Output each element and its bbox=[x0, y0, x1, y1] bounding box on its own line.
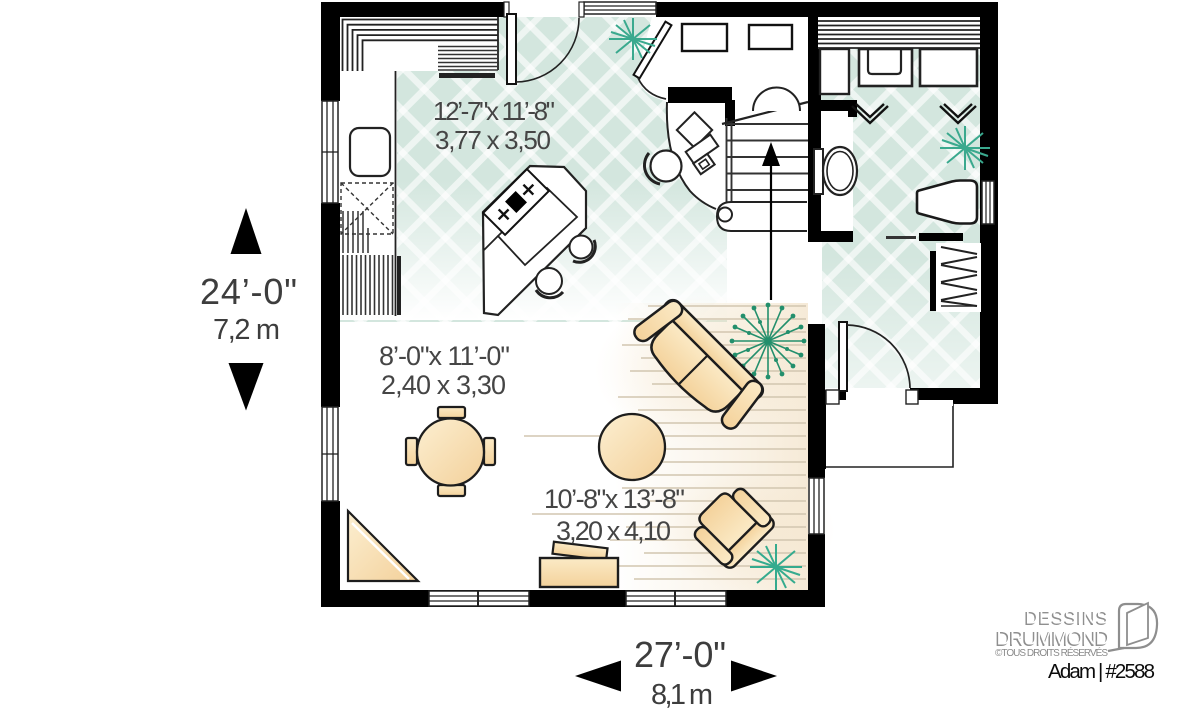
svg-text:24’-0": 24’-0" bbox=[200, 271, 297, 312]
svg-text:DRUMMOND: DRUMMOND bbox=[997, 628, 1111, 650]
svg-text:10’-8"x 13’-8": 10’-8"x 13’-8" bbox=[544, 484, 685, 514]
svg-text:3,20 x 4,10: 3,20 x 4,10 bbox=[556, 516, 671, 546]
svg-text:12’-7"x 11’-8": 12’-7"x 11’-8" bbox=[433, 96, 555, 126]
svg-text:2,40 x 3,30: 2,40 x 3,30 bbox=[381, 370, 506, 400]
svg-text:7,2 m: 7,2 m bbox=[213, 314, 280, 346]
svg-text:8,1 m: 8,1 m bbox=[651, 679, 713, 711]
svg-text:Adam | #2588: Adam | #2588 bbox=[1048, 660, 1155, 683]
svg-text:8’-0"x 11’-0": 8’-0"x 11’-0" bbox=[379, 341, 510, 371]
svg-text:©TOUS DROITS RÉSERVÉS: ©TOUS DROITS RÉSERVÉS bbox=[995, 646, 1108, 659]
svg-text:3,77 x 3,50: 3,77 x 3,50 bbox=[435, 125, 551, 155]
svg-text:27’-0": 27’-0" bbox=[634, 634, 726, 675]
svg-text:DESSINS: DESSINS bbox=[1026, 608, 1110, 628]
